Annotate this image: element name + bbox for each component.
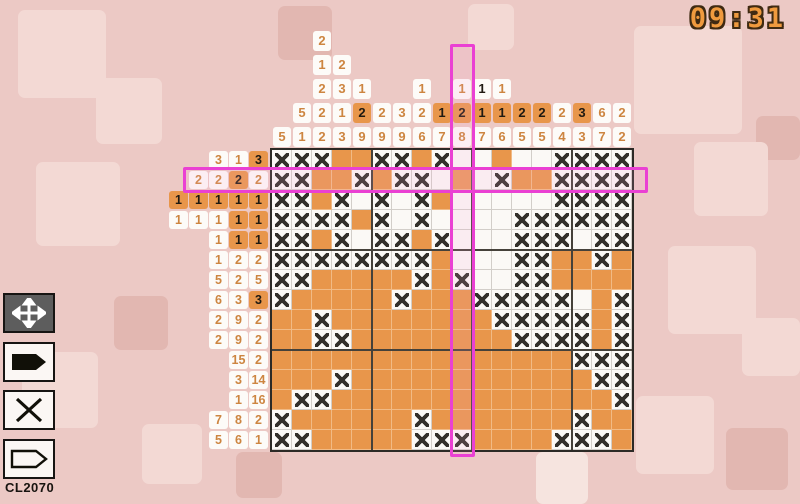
cross-tool-button[interactable]	[3, 390, 55, 430]
grid-cell-r15c11[interactable]	[472, 430, 492, 450]
col-clue-c12: 1	[493, 103, 511, 123]
grid-cell-r5c2[interactable]	[292, 230, 312, 250]
row-clue-r15: 6	[229, 431, 248, 449]
grid-cell-r10c11[interactable]	[472, 330, 492, 350]
grid-cell-r5c12[interactable]	[492, 230, 512, 250]
col-clue-c3: 2	[313, 31, 331, 51]
grid-cell-r5c17[interactable]	[592, 230, 612, 250]
grid-cell-r7c11[interactable]	[472, 270, 492, 290]
grid-cell-r11c12[interactable]	[492, 350, 512, 370]
bg-square	[36, 162, 120, 246]
grid-cell-r4c11[interactable]	[472, 210, 492, 230]
grid-cell-r11c18[interactable]	[612, 350, 632, 370]
grid-cell-r15c18[interactable]	[612, 430, 632, 450]
grid-cell-r10c2[interactable]	[292, 330, 312, 350]
grid-cell-r8c5[interactable]	[352, 290, 372, 310]
grid-cell-r11c9[interactable]	[432, 350, 452, 370]
grid-cell-r15c7[interactable]	[392, 430, 412, 450]
grid-cell-r8c14[interactable]	[532, 290, 552, 310]
empty-marker-tool-button[interactable]	[3, 439, 55, 479]
row-clue-r5: 1	[209, 231, 228, 249]
row-clue-r10: 2	[209, 331, 228, 349]
grid-cell-r7c13[interactable]	[512, 270, 532, 290]
grid-cell-r3c7[interactable]	[392, 190, 412, 210]
grid-cell-r12c14[interactable]	[532, 370, 552, 390]
cross-icon	[14, 397, 44, 423]
grid-cell-r9c9[interactable]	[432, 310, 452, 330]
grid-cell-r12c17[interactable]	[592, 370, 612, 390]
grid-cell-r14c16[interactable]	[572, 410, 592, 430]
grid-cell-r8c7[interactable]	[392, 290, 412, 310]
grid-cell-r5c3[interactable]	[312, 230, 332, 250]
grid-cell-r9c16[interactable]	[572, 310, 592, 330]
grid-cell-r4c18[interactable]	[612, 210, 632, 230]
grid-cell-r13c12[interactable]	[492, 390, 512, 410]
grid-cell-r6c9[interactable]	[432, 250, 452, 270]
grid-cell-r6c4[interactable]	[332, 250, 352, 270]
grid-cell-r14c9[interactable]	[432, 410, 452, 430]
grid-cell-r7c5[interactable]	[352, 270, 372, 290]
grid-cell-r9c4[interactable]	[332, 310, 352, 330]
grid-cell-r3c15[interactable]	[552, 190, 572, 210]
grid-cell-r10c5[interactable]	[352, 330, 372, 350]
grid-cell-r10c7[interactable]	[392, 330, 412, 350]
grid-cell-r12c2[interactable]	[292, 370, 312, 390]
grid-cell-r6c12[interactable]	[492, 250, 512, 270]
row-clue-r4: 1	[169, 211, 188, 229]
grid-cell-r14c2[interactable]	[292, 410, 312, 430]
grid-cell-r14c8[interactable]	[412, 410, 432, 430]
grid-cell-r9c2[interactable]	[292, 310, 312, 330]
bg-square	[536, 452, 588, 504]
grid-cell-r4c5[interactable]	[352, 210, 372, 230]
bg-square	[142, 424, 202, 484]
grid-cell-r5c6[interactable]	[372, 230, 392, 250]
row-clue-r6: 1	[209, 251, 228, 269]
row-clue-r4: 1	[249, 211, 268, 229]
row-clue-r8: 3	[249, 291, 268, 309]
grid-cell-r5c1[interactable]	[272, 230, 292, 250]
grid-cell-r3c11[interactable]	[472, 190, 492, 210]
grid-cell-r9c15[interactable]	[552, 310, 572, 330]
grid-cell-r4c12[interactable]	[492, 210, 512, 230]
col-clue-c4: 2	[333, 55, 351, 75]
row-clue-r4: 1	[209, 211, 228, 229]
grid-cell-r13c6[interactable]	[372, 390, 392, 410]
row-clue-r13: 16	[249, 391, 268, 409]
grid-cell-r9c17[interactable]	[592, 310, 612, 330]
grid-cell-r9c12[interactable]	[492, 310, 512, 330]
row-clue-r3: 1	[209, 191, 228, 209]
grid-cell-r9c14[interactable]	[532, 310, 552, 330]
col-clue-c18: 2	[613, 103, 631, 123]
grid-cell-r3c2[interactable]	[292, 190, 312, 210]
grid-cell-r8c4[interactable]	[332, 290, 352, 310]
grid-cell-r7c3[interactable]	[312, 270, 332, 290]
grid-cell-r13c17[interactable]	[592, 390, 612, 410]
col-clue-c9: 7	[433, 127, 451, 147]
grid-cell-r5c8[interactable]	[412, 230, 432, 250]
grid-cell-r14c6[interactable]	[372, 410, 392, 430]
col-clue-c8: 1	[413, 79, 431, 99]
grid-cell-r13c11[interactable]	[472, 390, 492, 410]
bg-square	[636, 396, 714, 474]
grid-cell-r9c8[interactable]	[412, 310, 432, 330]
grid-cell-r10c1[interactable]	[272, 330, 292, 350]
col-clue-c2: 5	[293, 103, 311, 123]
grid-cell-r12c16[interactable]	[572, 370, 592, 390]
fill-tool-button[interactable]	[3, 342, 55, 382]
grid-cell-r13c14[interactable]	[532, 390, 552, 410]
row-clue-r4: 1	[229, 211, 248, 229]
grid-cell-r10c18[interactable]	[612, 330, 632, 350]
grid-cell-r3c16[interactable]	[572, 190, 592, 210]
grid-cell-r13c9[interactable]	[432, 390, 452, 410]
col-clue-c9: 1	[433, 103, 451, 123]
grid-cell-r14c3[interactable]	[312, 410, 332, 430]
grid-cell-r6c17[interactable]	[592, 250, 612, 270]
grid-cell-r8c18[interactable]	[612, 290, 632, 310]
grid-cell-r11c16[interactable]	[572, 350, 592, 370]
grid-cell-r11c17[interactable]	[592, 350, 612, 370]
grid-cell-r4c17[interactable]	[592, 210, 612, 230]
grid-cell-r11c14[interactable]	[532, 350, 552, 370]
grid-cell-r9c13[interactable]	[512, 310, 532, 330]
move-tool-button[interactable]	[3, 293, 55, 333]
grid-cell-r14c12[interactable]	[492, 410, 512, 430]
row-clue-r7: 5	[249, 271, 268, 289]
col-clue-c16: 3	[573, 103, 591, 123]
grid-cell-r13c3[interactable]	[312, 390, 332, 410]
grid-cell-r12c4[interactable]	[332, 370, 352, 390]
grid-cell-r13c16[interactable]	[572, 390, 592, 410]
grid-cell-r8c3[interactable]	[312, 290, 332, 310]
grid-cell-r13c5[interactable]	[352, 390, 372, 410]
grid-cell-r8c8[interactable]	[412, 290, 432, 310]
grid-cell-r15c13[interactable]	[512, 430, 532, 450]
col-clue-c8: 6	[413, 127, 431, 147]
grid-cell-r4c16[interactable]	[572, 210, 592, 230]
grid-cell-r5c14[interactable]	[532, 230, 552, 250]
grid-cell-r8c2[interactable]	[292, 290, 312, 310]
grid-cell-r12c15[interactable]	[552, 370, 572, 390]
grid-cell-r13c7[interactable]	[392, 390, 412, 410]
grid-cell-r4c3[interactable]	[312, 210, 332, 230]
grid-cell-r11c7[interactable]	[392, 350, 412, 370]
grid-cell-r10c17[interactable]	[592, 330, 612, 350]
grid-cell-r8c12[interactable]	[492, 290, 512, 310]
bg-square	[114, 296, 168, 350]
row-clue-r11: 15	[229, 351, 248, 369]
grid-cell-r9c5[interactable]	[352, 310, 372, 330]
grid-cell-r4c4[interactable]	[332, 210, 352, 230]
bg-square	[236, 452, 282, 498]
grid-cell-r5c5[interactable]	[352, 230, 372, 250]
marker-filled-icon	[10, 351, 48, 373]
grid-cell-r5c4[interactable]	[332, 230, 352, 250]
grid-cell-r3c6[interactable]	[372, 190, 392, 210]
row-clue-r8: 6	[209, 291, 228, 309]
grid-cell-r14c13[interactable]	[512, 410, 532, 430]
grid-cell-r15c12[interactable]	[492, 430, 512, 450]
grid-cell-r3c8[interactable]	[412, 190, 432, 210]
grid-cell-r6c3[interactable]	[312, 250, 332, 270]
col-clue-c8: 2	[413, 103, 431, 123]
grid-cell-r14c11[interactable]	[472, 410, 492, 430]
col-clue-c14: 2	[533, 103, 551, 123]
grid-cell-r4c15[interactable]	[552, 210, 572, 230]
grid-cell-r12c18[interactable]	[612, 370, 632, 390]
grid-cell-r4c8[interactable]	[412, 210, 432, 230]
grid-cell-r3c5[interactable]	[352, 190, 372, 210]
grid-cell-r6c14[interactable]	[532, 250, 552, 270]
row-clue-r3: 1	[249, 191, 268, 209]
col-clue-c1: 5	[273, 127, 291, 147]
grid-cell-r11c2[interactable]	[292, 350, 312, 370]
row-clue-r15: 1	[249, 431, 268, 449]
grid-cell-r14c1[interactable]	[272, 410, 292, 430]
grid-cell-r15c2[interactable]	[292, 430, 312, 450]
row-clue-r14: 7	[209, 411, 228, 429]
marker-outline-icon	[10, 448, 48, 470]
grid-cell-r4c14[interactable]	[532, 210, 552, 230]
row-clue-r8: 3	[229, 291, 248, 309]
grid-cell-r10c14[interactable]	[532, 330, 552, 350]
grid-cell-r7c18[interactable]	[612, 270, 632, 290]
row-clue-r3: 1	[169, 191, 188, 209]
grid-cell-r15c5[interactable]	[352, 430, 372, 450]
grid-cell-r12c8[interactable]	[412, 370, 432, 390]
grid-cell-r15c15[interactable]	[552, 430, 572, 450]
grid-cell-r3c12[interactable]	[492, 190, 512, 210]
grid-cell-r13c8[interactable]	[412, 390, 432, 410]
row-clue-r11: 2	[249, 351, 268, 369]
grid-cell-r8c15[interactable]	[552, 290, 572, 310]
bg-square	[468, 4, 514, 50]
grid-cell-r15c3[interactable]	[312, 430, 332, 450]
grid-cell-r7c4[interactable]	[332, 270, 352, 290]
grid-cell-r9c6[interactable]	[372, 310, 392, 330]
grid-cell-r9c11[interactable]	[472, 310, 492, 330]
grid-cell-r3c13[interactable]	[512, 190, 532, 210]
col-clue-c13: 2	[513, 103, 531, 123]
grid-cell-r4c6[interactable]	[372, 210, 392, 230]
row-clue-r13: 1	[229, 391, 248, 409]
grid-cell-r4c13[interactable]	[512, 210, 532, 230]
grid-cell-r11c6[interactable]	[372, 350, 392, 370]
grid-cell-r11c5[interactable]	[352, 350, 372, 370]
grid-cell-r6c11[interactable]	[472, 250, 492, 270]
grid-cell-r14c18[interactable]	[612, 410, 632, 430]
grid-cell-r6c13[interactable]	[512, 250, 532, 270]
col-clue-c6: 9	[373, 127, 391, 147]
grid-cell-r13c15[interactable]	[552, 390, 572, 410]
grid-cell-r15c8[interactable]	[412, 430, 432, 450]
grid-cell-r12c12[interactable]	[492, 370, 512, 390]
grid-cell-r15c9[interactable]	[432, 430, 452, 450]
row-clue-r3: 1	[229, 191, 248, 209]
grid-cell-r3c14[interactable]	[532, 190, 552, 210]
col-clue-c15: 4	[553, 127, 571, 147]
grid-cell-r12c9[interactable]	[432, 370, 452, 390]
grid-cell-r15c1[interactable]	[272, 430, 292, 450]
col-clue-c15: 2	[553, 103, 571, 123]
grid-cell-r10c6[interactable]	[372, 330, 392, 350]
col-clue-c2: 1	[293, 127, 311, 147]
grid-cell-r6c8[interactable]	[412, 250, 432, 270]
row-clue-r5: 1	[229, 231, 248, 249]
grid-cell-r7c12[interactable]	[492, 270, 512, 290]
row-clue-r6: 2	[249, 251, 268, 269]
grid-cell-r11c4[interactable]	[332, 350, 352, 370]
grid-cell-r9c18[interactable]	[612, 310, 632, 330]
grid-cell-r11c11[interactable]	[472, 350, 492, 370]
grid-cell-r3c4[interactable]	[332, 190, 352, 210]
grid-cell-r14c15[interactable]	[552, 410, 572, 430]
grid-cell-r12c7[interactable]	[392, 370, 412, 390]
grid-cell-r6c1[interactable]	[272, 250, 292, 270]
grid-cell-r6c5[interactable]	[352, 250, 372, 270]
grid-cell-r7c1[interactable]	[272, 270, 292, 290]
col-clue-c14: 5	[533, 127, 551, 147]
grid-cell-r12c3[interactable]	[312, 370, 332, 390]
bg-square	[742, 318, 800, 376]
grid-cell-r12c5[interactable]	[352, 370, 372, 390]
grid-cell-r6c7[interactable]	[392, 250, 412, 270]
row-clue-r5: 1	[249, 231, 268, 249]
grid-cell-r8c9[interactable]	[432, 290, 452, 310]
grid-cell-r13c13[interactable]	[512, 390, 532, 410]
grid-cell-r11c3[interactable]	[312, 350, 332, 370]
grid-cell-r7c6[interactable]	[372, 270, 392, 290]
grid-cell-r4c9[interactable]	[432, 210, 452, 230]
grid-cell-r13c2[interactable]	[292, 390, 312, 410]
grid-cell-r3c18[interactable]	[612, 190, 632, 210]
grid-cell-r4c7[interactable]	[392, 210, 412, 230]
grid-cell-r10c4[interactable]	[332, 330, 352, 350]
col-clue-c5: 2	[353, 103, 371, 123]
row-clue-r14: 2	[249, 411, 268, 429]
grid-cell-r6c16[interactable]	[572, 250, 592, 270]
grid-cell-r5c18[interactable]	[612, 230, 632, 250]
row-clue-r10: 9	[229, 331, 248, 349]
col-clue-c4: 3	[333, 79, 351, 99]
col-clue-c3: 1	[313, 55, 331, 75]
grid-cell-r10c16[interactable]	[572, 330, 592, 350]
grid-cell-r4c1[interactable]	[272, 210, 292, 230]
grid-cell-r14c5[interactable]	[352, 410, 372, 430]
col-clue-c6: 2	[373, 103, 391, 123]
grid-cell-r11c15[interactable]	[552, 350, 572, 370]
grid-cell-r13c18[interactable]	[612, 390, 632, 410]
grid-cell-r7c16[interactable]	[572, 270, 592, 290]
grid-cell-r3c3[interactable]	[312, 190, 332, 210]
grid-cell-r7c9[interactable]	[432, 270, 452, 290]
grid-cell-r15c4[interactable]	[332, 430, 352, 450]
row-clue-r12: 3	[229, 371, 248, 389]
grid-cell-r3c9[interactable]	[432, 190, 452, 210]
grid-cell-r12c13[interactable]	[512, 370, 532, 390]
grid-cell-r15c6[interactable]	[372, 430, 392, 450]
grid-cell-r8c13[interactable]	[512, 290, 532, 310]
grid-cell-r4c2[interactable]	[292, 210, 312, 230]
grid-cell-r7c2[interactable]	[292, 270, 312, 290]
grid-cell-r8c1[interactable]	[272, 290, 292, 310]
col-clue-c18: 2	[613, 127, 631, 147]
grid-cell-r3c1[interactable]	[272, 190, 292, 210]
grid-cell-r5c16[interactable]	[572, 230, 592, 250]
grid-cell-r7c8[interactable]	[412, 270, 432, 290]
grid-cell-r7c7[interactable]	[392, 270, 412, 290]
row-clue-r14: 8	[229, 411, 248, 429]
grid-cell-r6c18[interactable]	[612, 250, 632, 270]
grid-cell-r10c15[interactable]	[552, 330, 572, 350]
grid-cell-r9c3[interactable]	[312, 310, 332, 330]
grid-cell-r14c17[interactable]	[592, 410, 612, 430]
grid-cell-r5c9[interactable]	[432, 230, 452, 250]
grid-cell-r10c13[interactable]	[512, 330, 532, 350]
grid-cell-r15c16[interactable]	[572, 430, 592, 450]
grid-cell-r3c17[interactable]	[592, 190, 612, 210]
timer: 09:31	[690, 3, 786, 34]
grid-cell-r14c4[interactable]	[332, 410, 352, 430]
grid-cell-r7c14[interactable]	[532, 270, 552, 290]
row-cursor-highlight	[183, 167, 648, 193]
grid-cell-r12c11[interactable]	[472, 370, 492, 390]
grid-cell-r11c1[interactable]	[272, 350, 292, 370]
grid-cell-r8c16[interactable]	[572, 290, 592, 310]
bg-square	[726, 428, 788, 490]
col-clue-c12: 1	[493, 79, 511, 99]
grid-cell-r5c11[interactable]	[472, 230, 492, 250]
bg-square	[96, 78, 162, 144]
grid-cell-r7c17[interactable]	[592, 270, 612, 290]
col-clue-c11: 1	[473, 103, 491, 123]
grid-cell-r8c6[interactable]	[372, 290, 392, 310]
grid-cell-r6c2[interactable]	[292, 250, 312, 270]
grid-cell-r9c7[interactable]	[392, 310, 412, 330]
grid-cell-r11c13[interactable]	[512, 350, 532, 370]
grid-cell-r12c6[interactable]	[372, 370, 392, 390]
grid-cell-r8c17[interactable]	[592, 290, 612, 310]
col-clue-c4: 1	[333, 103, 351, 123]
col-clue-c17: 6	[593, 103, 611, 123]
grid-cell-r7c15[interactable]	[552, 270, 572, 290]
grid-cell-r14c7[interactable]	[392, 410, 412, 430]
grid-cell-r10c12[interactable]	[492, 330, 512, 350]
grid-cell-r12c1[interactable]	[272, 370, 292, 390]
grid-cell-r10c3[interactable]	[312, 330, 332, 350]
grid-cell-r6c15[interactable]	[552, 250, 572, 270]
grid-cell-r5c7[interactable]	[392, 230, 412, 250]
grid-cell-r9c1[interactable]	[272, 310, 292, 330]
grid-cell-r5c15[interactable]	[552, 230, 572, 250]
grid-cell-r15c17[interactable]	[592, 430, 612, 450]
grid-cell-r11c8[interactable]	[412, 350, 432, 370]
row-clue-r3: 1	[189, 191, 208, 209]
grid-cell-r10c9[interactable]	[432, 330, 452, 350]
grid-cell-r5c13[interactable]	[512, 230, 532, 250]
grid-cell-r14c14[interactable]	[532, 410, 552, 430]
grid-cell-r8c11[interactable]	[472, 290, 492, 310]
grid-cell-r15c14[interactable]	[532, 430, 552, 450]
grid-cell-r6c6[interactable]	[372, 250, 392, 270]
grid-cell-r10c8[interactable]	[412, 330, 432, 350]
row-clue-r10: 2	[249, 331, 268, 349]
grid-cell-r13c4[interactable]	[332, 390, 352, 410]
grid-cell-r13c1[interactable]	[272, 390, 292, 410]
col-clue-c3: 2	[313, 127, 331, 147]
